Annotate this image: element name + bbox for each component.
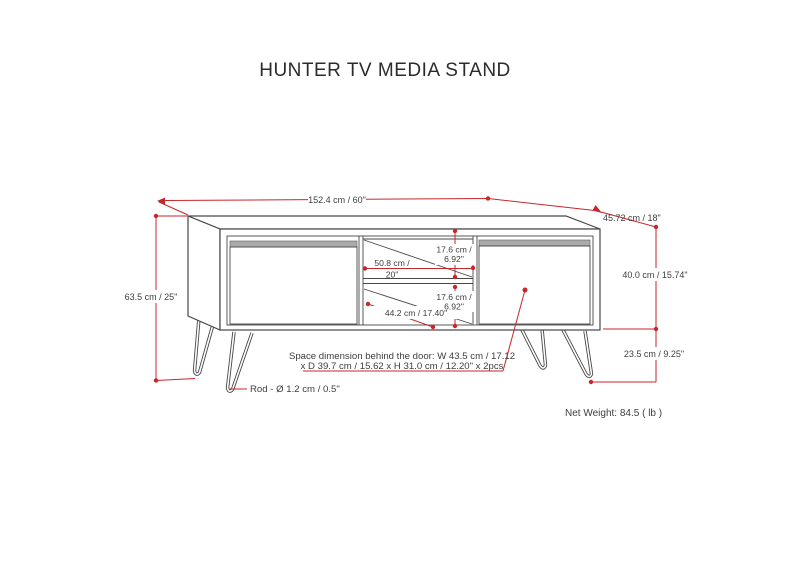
lower-opening-width-label: 44.2 cm / 17.40" bbox=[385, 308, 447, 318]
arrowhead-icon bbox=[157, 198, 165, 205]
rod-diameter-label: Rod - Ø 1.2 cm / 0.5" bbox=[250, 384, 340, 395]
lower-opening-height-label-cm: 17.6 cm / bbox=[436, 292, 472, 302]
upper-opening-height-label-cm: 17.6 cm / bbox=[436, 245, 472, 255]
right-door-top-gap bbox=[479, 240, 590, 246]
leg-front-left bbox=[228, 332, 253, 391]
leg-front-right bbox=[563, 330, 592, 376]
left-side-panel bbox=[188, 216, 220, 330]
overall-depth-label: 45.72 cm / 18" bbox=[603, 213, 661, 223]
overall-width-label: 152.4 cm / 60" bbox=[308, 195, 366, 205]
upper-opening-height-label-in: 6.92" bbox=[444, 254, 464, 264]
opening-width-label-in: 20" bbox=[386, 270, 399, 280]
arrowhead-icon bbox=[593, 205, 603, 213]
leg-back-right bbox=[521, 328, 546, 368]
left-door-top-gap bbox=[230, 241, 357, 247]
overall-width-dimension bbox=[157, 196, 602, 215]
leg-height-label: 23.5 cm / 9.25" bbox=[624, 349, 684, 359]
overall-height-label: 63.5 cm / 25" bbox=[125, 292, 178, 302]
dimension-drawing: HUNTER TV MEDIA STAND bbox=[0, 0, 800, 565]
top-surface bbox=[188, 216, 600, 229]
net-weight-label: Net Weight: 84.5 ( lb ) bbox=[565, 408, 662, 419]
cabinet-height-label: 40.0 cm / 15.74" bbox=[622, 270, 687, 280]
door-space-label-line2: x D 39.7 cm / 15.62 x H 31.0 cm / 12.20"… bbox=[301, 361, 504, 372]
page-title: HUNTER TV MEDIA STAND bbox=[259, 60, 511, 81]
spec-sheet-page: HUNTER TV MEDIA STAND bbox=[0, 0, 800, 565]
opening-width-label-cm: 50.8 cm / bbox=[374, 258, 410, 268]
